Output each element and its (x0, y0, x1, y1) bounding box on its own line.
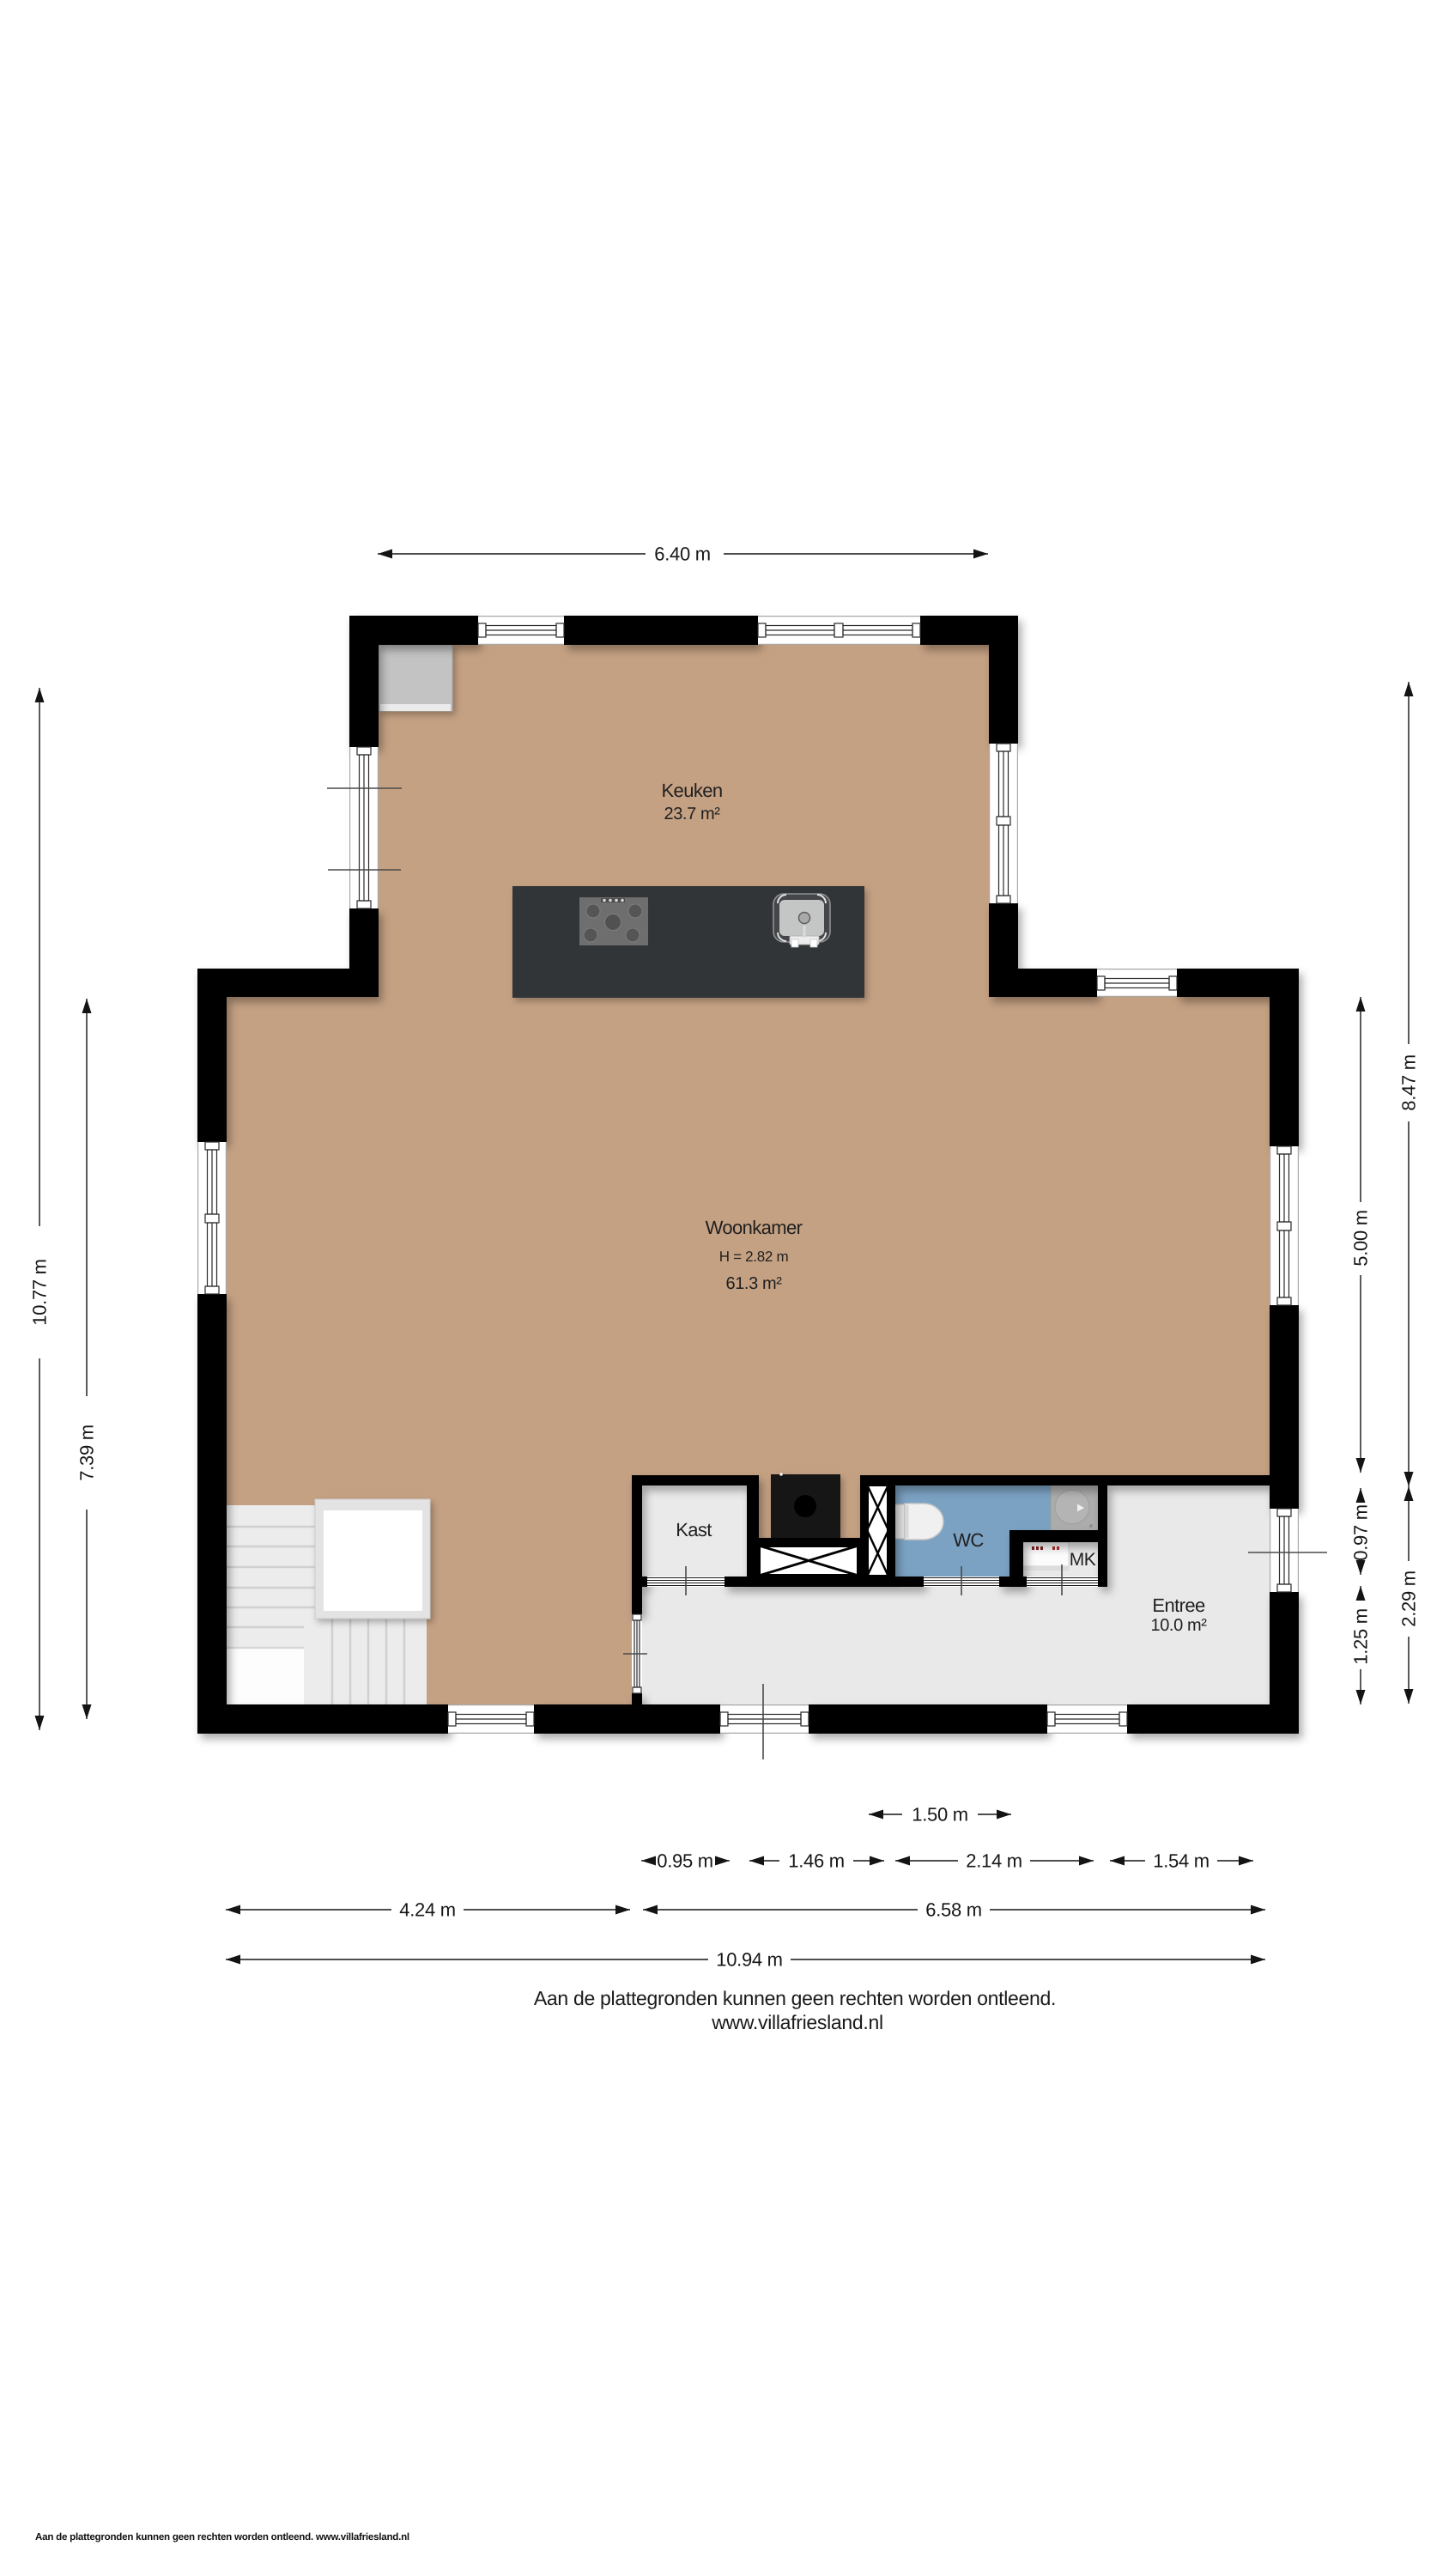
svg-text:Aan de plattegronden kunnen ge: Aan de plattegronden kunnen geen rechten… (534, 1987, 1056, 2009)
svg-text:10.0 m²: 10.0 m² (1150, 1616, 1207, 1635)
svg-text:Aan de plattegronden kunnen ge: Aan de plattegronden kunnen geen rechten… (35, 2531, 409, 2543)
svg-text:2.14 m: 2.14 m (966, 1850, 1022, 1872)
svg-text:7.39 m: 7.39 m (76, 1425, 98, 1480)
svg-text:Woonkamer: Woonkamer (706, 1217, 803, 1238)
svg-text:6.58 m: 6.58 m (925, 1899, 981, 1921)
svg-text:1.46 m: 1.46 m (788, 1850, 844, 1872)
svg-text:10.77 m: 10.77 m (29, 1259, 51, 1325)
svg-text:2.29 m: 2.29 m (1398, 1571, 1420, 1626)
svg-text:0.97 m: 0.97 m (1350, 1504, 1372, 1560)
svg-text:Kast: Kast (676, 1519, 712, 1540)
svg-text:6.40 m: 6.40 m (654, 544, 710, 565)
svg-text:10.94 m: 10.94 m (716, 1949, 782, 1971)
svg-text:61.3 m²: 61.3 m² (725, 1274, 782, 1293)
svg-text:8.47 m: 8.47 m (1398, 1054, 1420, 1110)
svg-text:23.7 m²: 23.7 m² (664, 805, 720, 823)
svg-text:Entree: Entree (1152, 1595, 1205, 1616)
svg-text:0.95 m: 0.95 m (657, 1850, 712, 1872)
svg-text:MK: MK (1070, 1550, 1096, 1570)
svg-text:1.50 m: 1.50 m (912, 1804, 967, 1826)
svg-text:1.54 m: 1.54 m (1153, 1850, 1209, 1872)
svg-text:1.25 m: 1.25 m (1350, 1608, 1372, 1664)
svg-text:www.villafriesland.nl: www.villafriesland.nl (711, 2011, 883, 2033)
svg-text:H = 2.82 m: H = 2.82 m (719, 1249, 789, 1265)
svg-text:Keuken: Keuken (661, 780, 722, 801)
svg-text:5.00 m: 5.00 m (1350, 1210, 1372, 1266)
svg-text:4.24 m: 4.24 m (399, 1899, 455, 1921)
svg-text:WC: WC (953, 1529, 984, 1551)
